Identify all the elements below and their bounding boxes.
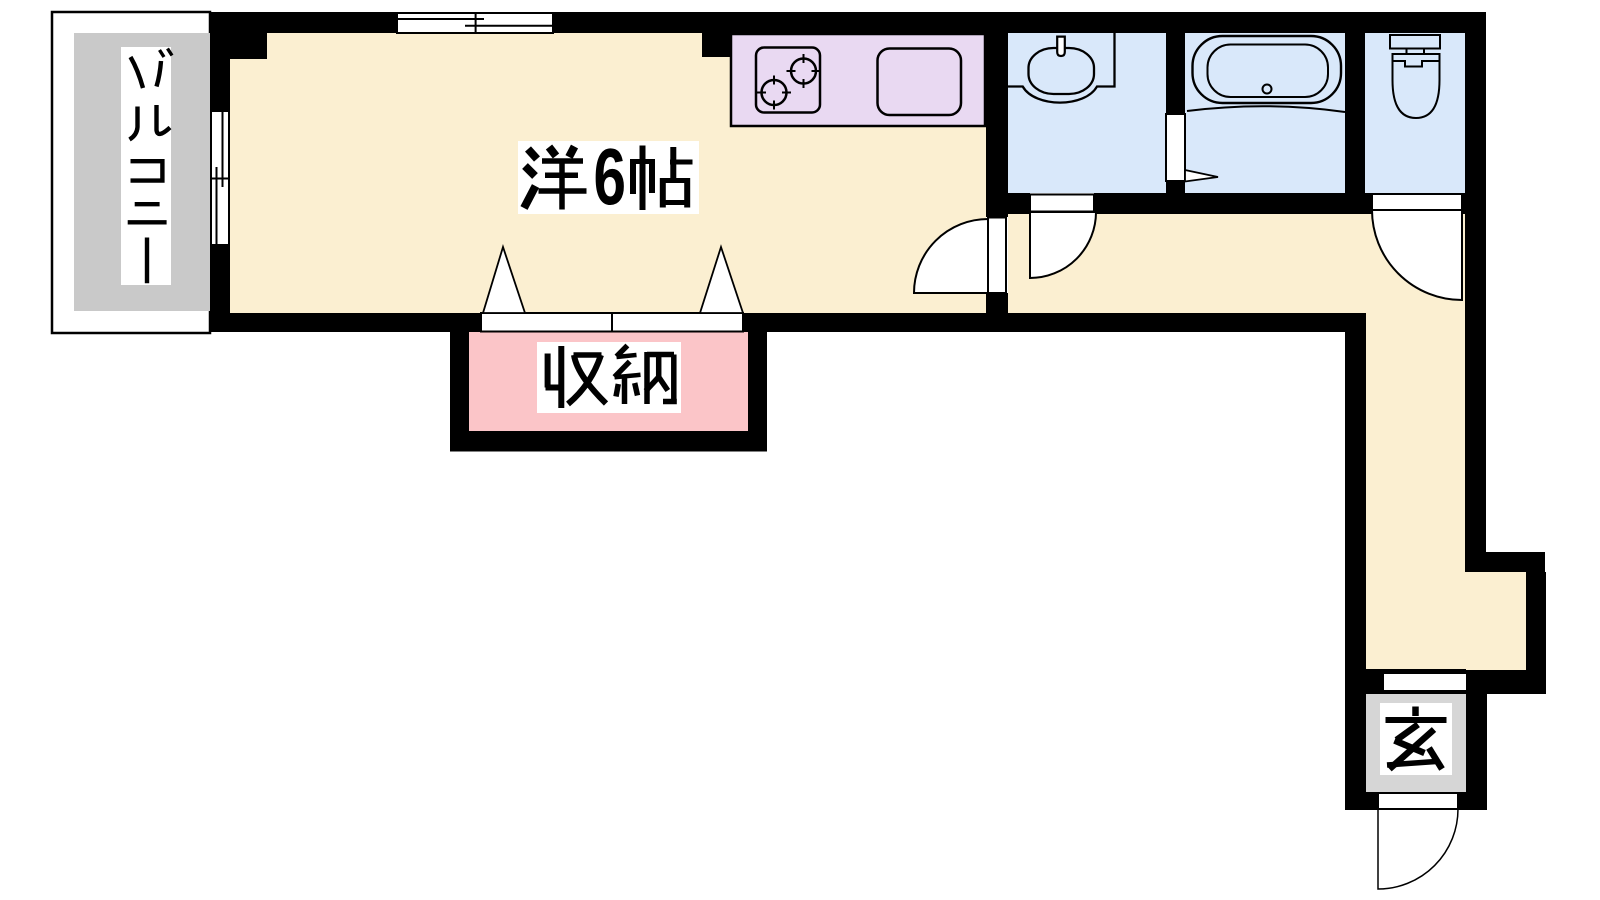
svg-text:6: 6 bbox=[594, 132, 626, 221]
